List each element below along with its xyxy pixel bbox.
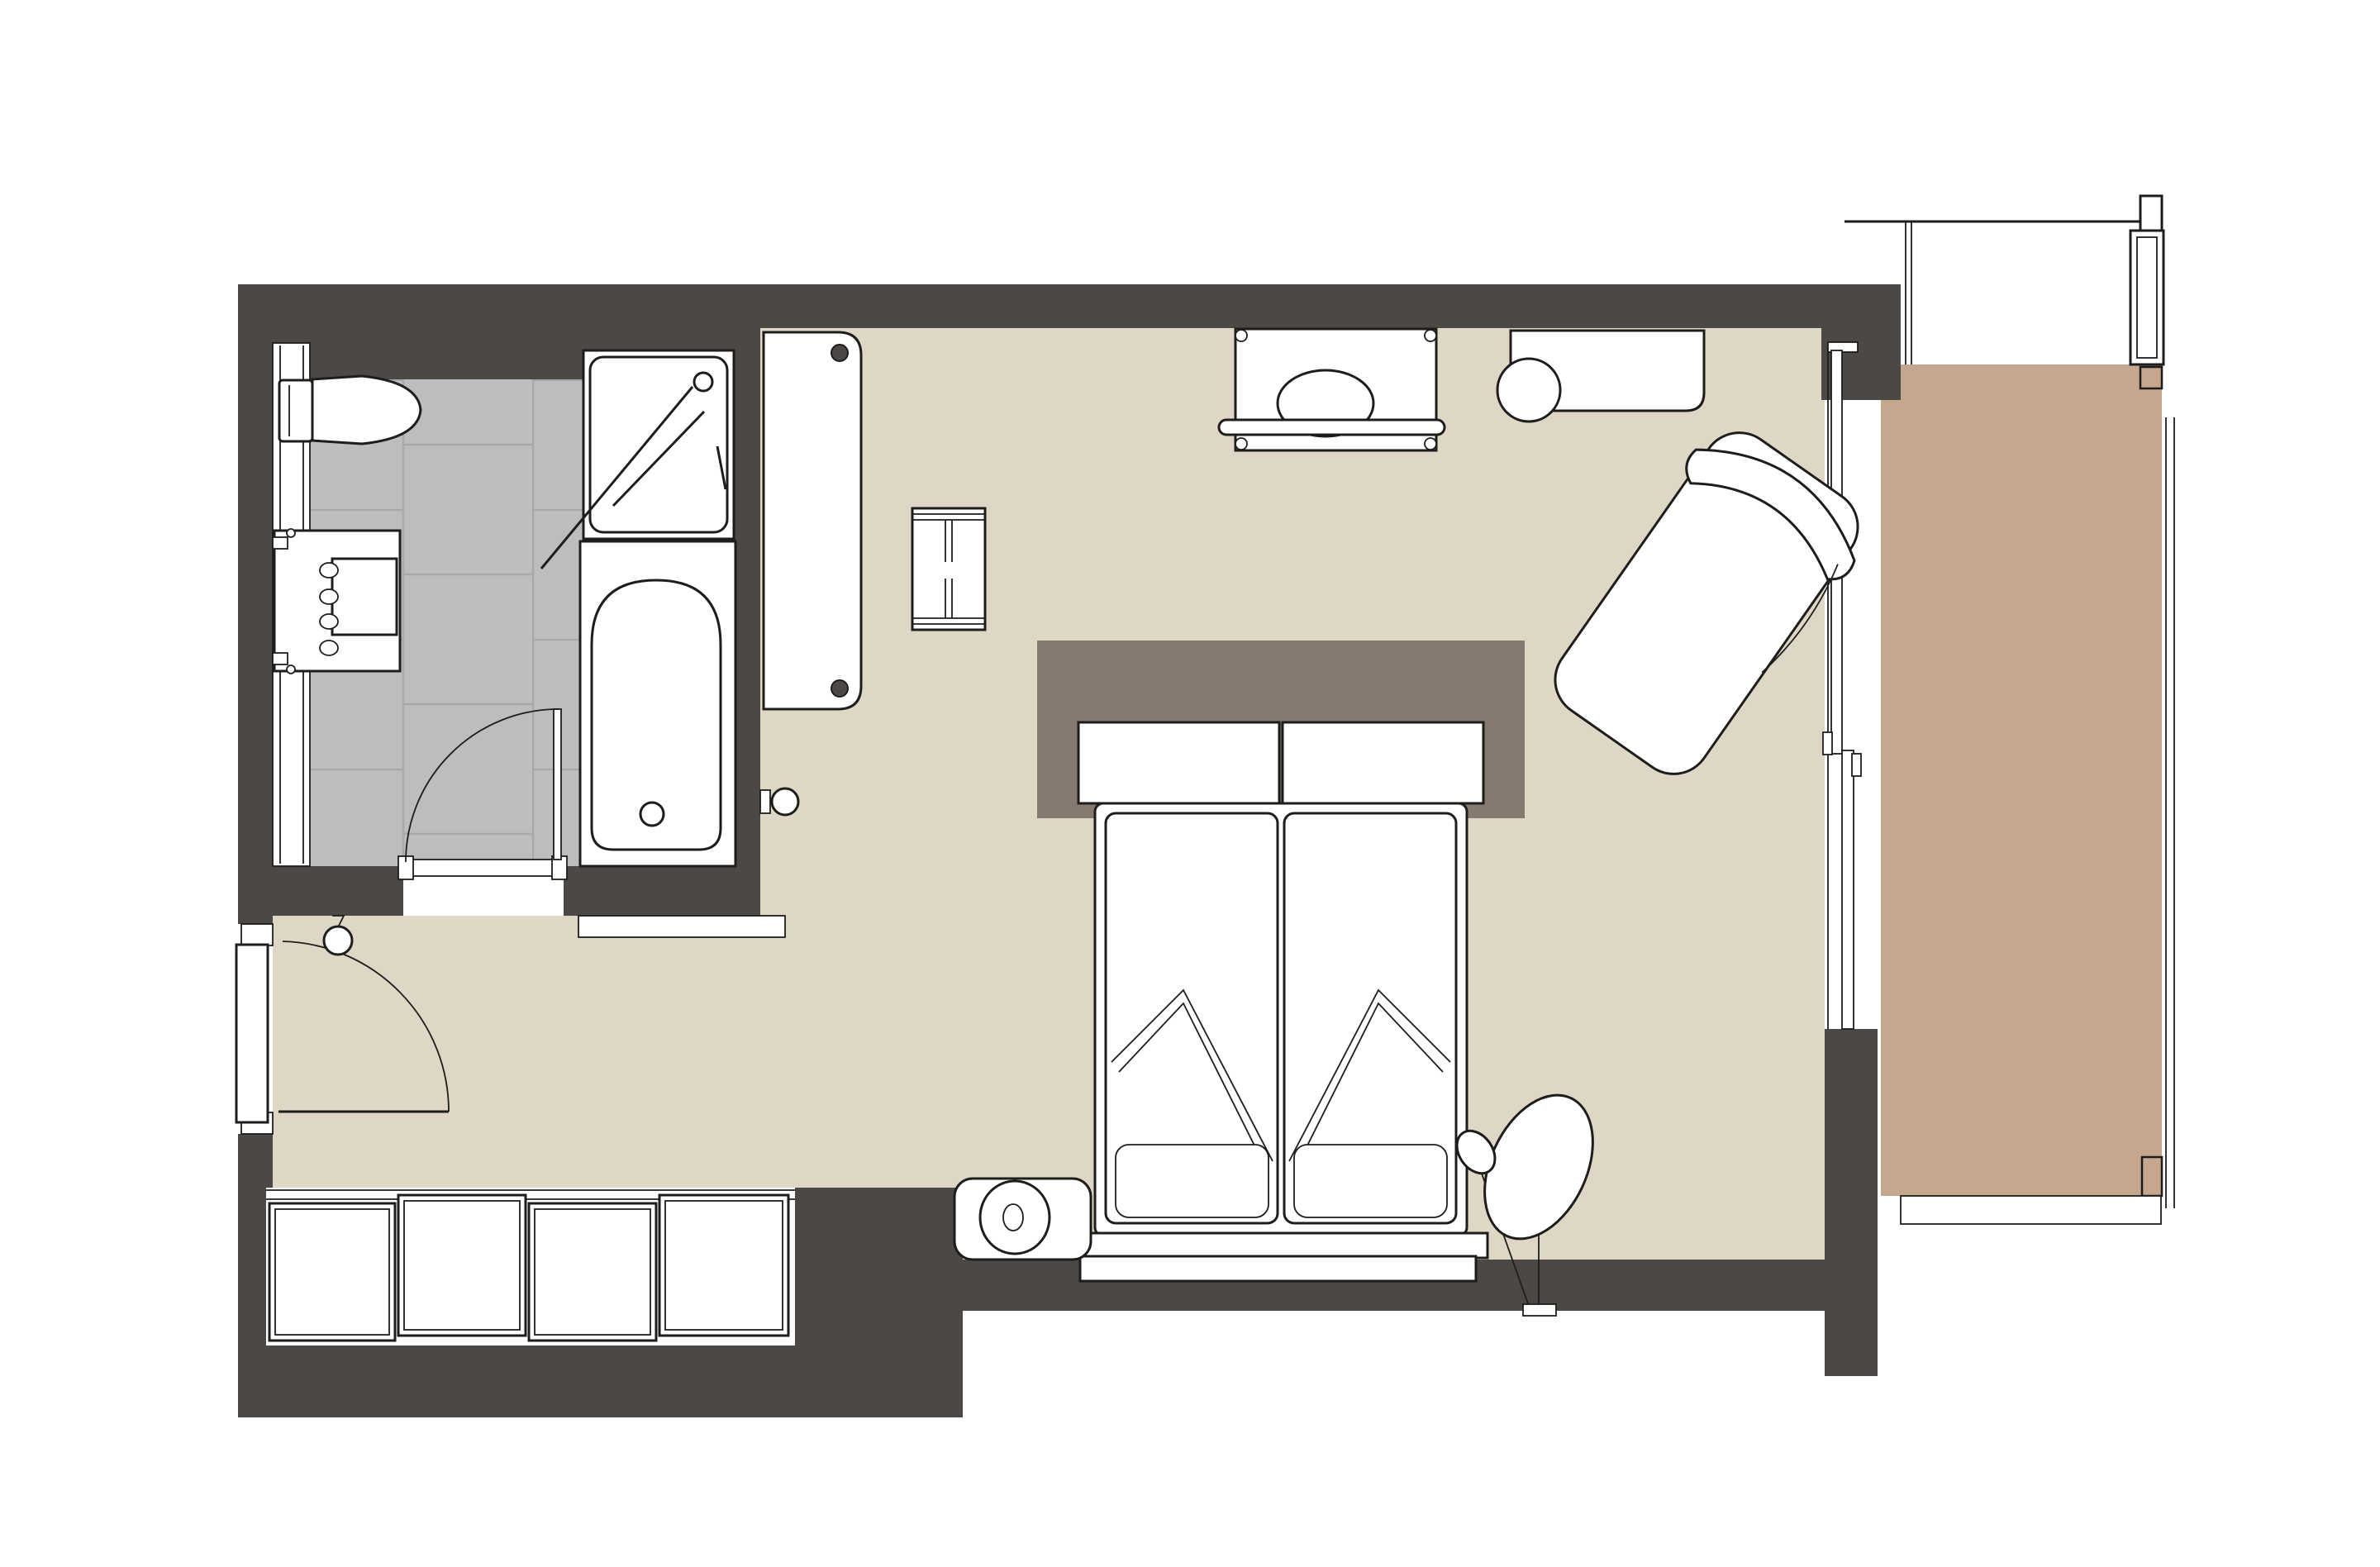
wall-top <box>238 284 1825 328</box>
console-leg-tl <box>1235 330 1247 341</box>
wall-bath-bottom-right <box>564 866 760 916</box>
wall-bracket-bottom <box>273 653 288 664</box>
bathtub-drain <box>640 803 664 826</box>
desk-area <box>1497 331 1704 422</box>
foot-throw-right <box>1294 1145 1447 1217</box>
screen-column-inner <box>2137 237 2157 358</box>
headboard-cushion-left <box>1078 722 1279 803</box>
wall-hook-knob[interactable] <box>772 788 798 815</box>
wall-bath-bottom-left <box>273 866 403 916</box>
bath-door-leaf[interactable] <box>554 709 561 860</box>
wall-top-shower-filler <box>583 328 734 350</box>
towel-rail <box>1219 420 1445 435</box>
wardrobe-knob-bottom[interactable] <box>831 680 848 697</box>
entry-jamb-top <box>241 924 273 945</box>
wardrobe[interactable] <box>764 332 861 709</box>
console-leg-br <box>1425 438 1436 450</box>
sliding-glass-door[interactable] <box>1823 342 1861 1029</box>
foot-bench-base <box>1080 1256 1476 1281</box>
console-leg-bl <box>1235 438 1247 450</box>
vestibule-floor <box>273 916 760 1188</box>
shower-head-icon <box>694 373 712 391</box>
headboard-cushion-right <box>1283 722 1483 803</box>
wall-bath-partition <box>734 328 760 916</box>
sliding-door-handle-outer[interactable] <box>1852 754 1861 776</box>
pouf-button <box>1003 1204 1023 1231</box>
vanity <box>273 529 400 674</box>
tap-handle-1 <box>320 563 338 578</box>
toilet-cistern <box>279 380 312 441</box>
balcony-floor-notch-top <box>2140 367 2162 388</box>
balcony-floor-notch-bottom <box>2142 1157 2162 1196</box>
closet-panel-3-inner <box>535 1209 650 1335</box>
bracket-pin-top <box>287 529 295 537</box>
wall-bracket-top <box>273 537 288 549</box>
built-in-closet[interactable] <box>266 1190 795 1341</box>
sliding-pane-right[interactable] <box>1842 750 1854 1029</box>
wall-right-corner-block <box>1825 1029 1878 1376</box>
sliding-door-handle-inner[interactable] <box>1823 732 1832 755</box>
tap-handle-2 <box>320 589 338 604</box>
closet-panel-1-inner <box>275 1209 389 1335</box>
toilet-bowl <box>312 376 421 444</box>
tap-handle-3 <box>320 614 338 629</box>
bath-door-threshold <box>403 860 564 876</box>
tap-handle-4 <box>320 641 338 655</box>
wall-top-bathroom-filler <box>273 328 583 379</box>
desk-chair[interactable] <box>1497 359 1560 422</box>
bath-wall-ledge <box>578 916 785 937</box>
foot-throw-left <box>1116 1145 1269 1217</box>
wash-basin <box>332 559 397 635</box>
closet-panel-4-inner <box>665 1201 783 1330</box>
closet-panel-2-inner <box>404 1201 520 1330</box>
screen-column-cap <box>2140 196 2162 231</box>
wall-left-upper <box>238 284 273 924</box>
console-leg-tr <box>1425 330 1436 341</box>
wardrobe-knob-top[interactable] <box>831 345 848 361</box>
entry-wall-knob <box>324 926 352 955</box>
double-bed <box>1069 722 1487 1281</box>
luggage-rack <box>912 508 985 630</box>
wardrobe-body[interactable] <box>764 332 861 709</box>
entry-door-frame[interactable] <box>236 945 268 1122</box>
bracket-pin-bottom <box>287 665 295 674</box>
console-table <box>1219 329 1445 450</box>
lamp-base <box>1523 1304 1556 1316</box>
wall-hook-bracket <box>760 790 770 813</box>
floor-plan-canvas <box>0 0 2380 1567</box>
foot-bench <box>1069 1233 1487 1258</box>
toilet <box>279 376 421 444</box>
bathtub <box>580 541 735 866</box>
balcony-floor <box>1881 364 2162 1196</box>
railing-base <box>1901 1196 2161 1224</box>
pouf-stool[interactable] <box>954 1179 1091 1260</box>
floor-plan-drawing <box>0 0 2380 1567</box>
luggage-rack-frame <box>912 508 985 630</box>
